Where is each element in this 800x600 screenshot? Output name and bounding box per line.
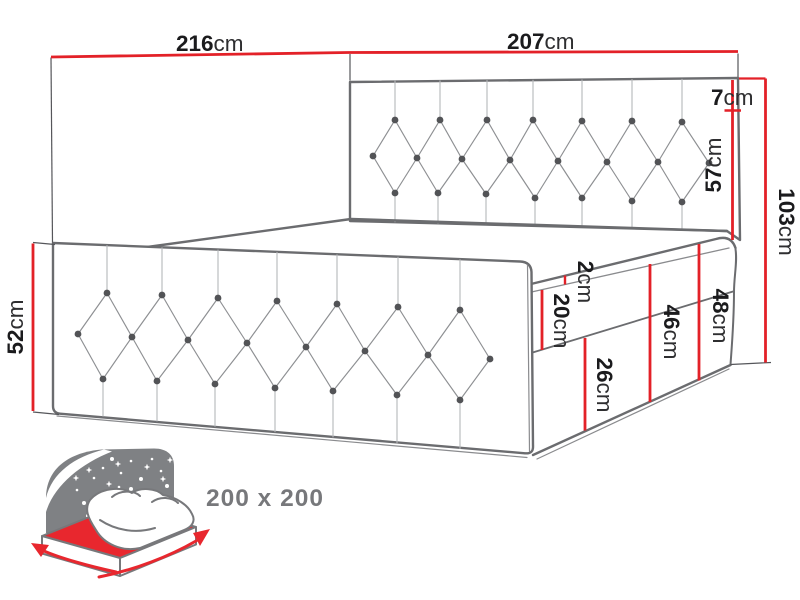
dim-line-216-207 [51, 52, 738, 58]
product-dimension-diagram: 216cm 207cm 7cm 57cm 103cm 52cm 2cm 20cm… [0, 0, 800, 600]
base-bottom-edge [533, 365, 731, 455]
dim-26-label: 26cm [592, 357, 617, 412]
mattress-corner [716, 238, 736, 292]
dim-57-label: 57cm [701, 137, 726, 192]
base-bottom-edge-inner [537, 369, 729, 459]
dim-48-label: 48cm [708, 288, 733, 343]
mattress-top-edge [531, 238, 736, 284]
dim-7-label: 7cm [711, 85, 754, 110]
dim-20-label: 20cm [549, 293, 574, 348]
dim-103-label: 103cm [774, 188, 799, 256]
bed-size-icon [31, 449, 210, 578]
dim-52-label: 52cm [3, 299, 28, 354]
side-panel [53, 243, 533, 458]
bed-technical-drawing: 216cm 207cm 7cm 57cm 103cm 52cm 2cm 20cm… [0, 0, 800, 600]
dim-207-label: 207cm [507, 29, 575, 54]
dim-216-label: 216cm [176, 31, 244, 56]
dim-2-label: 2cm [573, 261, 598, 304]
dim-46-label: 46cm [659, 304, 684, 359]
size-badge: 200 x 200 [206, 485, 324, 512]
